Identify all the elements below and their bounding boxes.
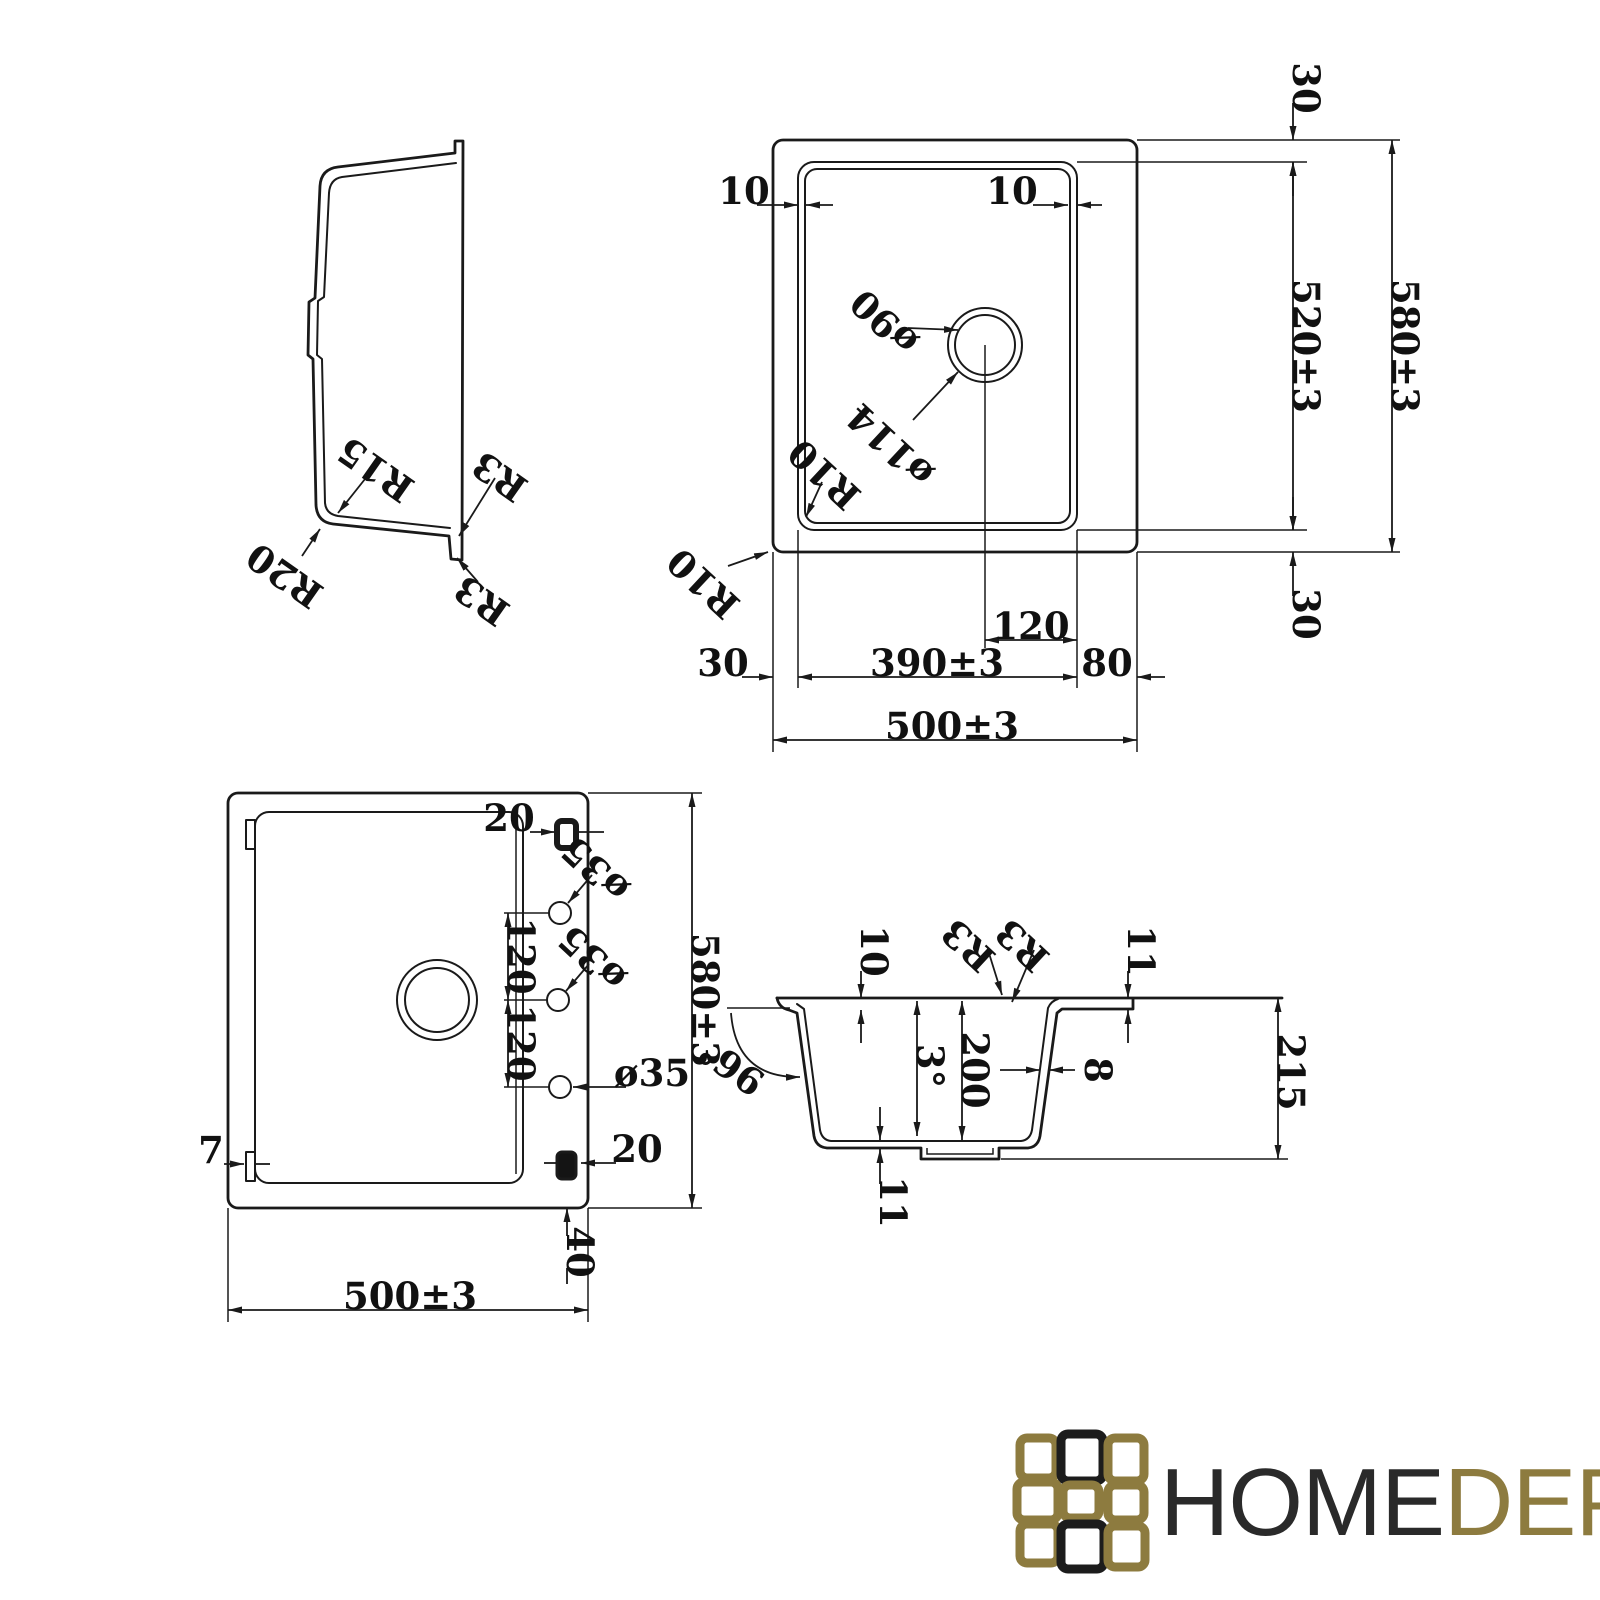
bottom-hole-mid [547, 989, 569, 1011]
bottom-tab-bottom [246, 1152, 255, 1181]
dim-d35-bottom: ø35 [614, 1051, 690, 1095]
dim-40: 40 [558, 1226, 602, 1278]
logo-square [1108, 1485, 1144, 1520]
dim-500: 500±3 [885, 704, 1019, 748]
section-view: 10 R3 R3 11 96° 3° 200 8 215 11 [690, 910, 1313, 1228]
dim-215: 215 [1269, 1033, 1313, 1110]
dim-11-top: 11 [1119, 925, 1163, 977]
dim-200: 200 [953, 1031, 997, 1108]
dim-10-right: 10 [986, 169, 1038, 213]
top-plan-view: 30 520±3 580±3 30 10 10 120 390±3 30 80 … [658, 62, 1427, 752]
section-drain-bump-inner [927, 1148, 993, 1154]
logo-wordmark: HOMEDEPO [1160, 1449, 1600, 1556]
logo-square [1061, 1524, 1104, 1569]
dim-10-left: 10 [718, 169, 770, 213]
dim-390: 390±3 [870, 641, 1004, 685]
dim-11-bottom: 11 [871, 1176, 915, 1228]
dim-8: 8 [1076, 1057, 1120, 1083]
dim-500-bottomview: 500±3 [343, 1274, 477, 1318]
bottom-tab-top [246, 820, 255, 849]
logo-square [1108, 1438, 1144, 1481]
dim-10-section: 10 [852, 925, 896, 977]
brand-logo: HOMEDEPO [1017, 1434, 1600, 1569]
dim-20-top: 20 [483, 796, 535, 840]
leader-drain-outer [913, 372, 958, 420]
dim-r10-outer: R10 [658, 539, 748, 627]
logo-word-depo: DEPO [1444, 1449, 1600, 1556]
dim-drain-90: ø90 [841, 280, 927, 364]
logo-square [1108, 1526, 1145, 1567]
dim-r15: R15 [329, 428, 422, 511]
dim-r20: R20 [238, 534, 331, 617]
bottom-slot-bottom [557, 1152, 576, 1179]
dim-3deg: 3° [908, 1044, 952, 1088]
bottom-hole-top [549, 902, 571, 924]
leader-r10-outer [728, 552, 768, 566]
side-profile-view: R15 R20 R3 R3 [238, 141, 535, 635]
dim-120-b: 120 [499, 1004, 543, 1081]
bottom-view: 20 ø35 ø35 ø35 120 120 580±3 20 7 40 500… [198, 793, 727, 1322]
leader-r20 [302, 529, 320, 556]
dim-r3-lower: R3 [446, 566, 518, 634]
dim-20-bottom: 20 [611, 1127, 663, 1171]
dim-7: 7 [198, 1128, 224, 1172]
logo-square [1061, 1434, 1103, 1481]
dim-30-top: 30 [1284, 62, 1328, 114]
dim-80: 80 [1081, 641, 1133, 685]
dim-120-a: 120 [499, 917, 543, 994]
logo-square [1020, 1438, 1056, 1478]
bottom-hole-bottom [549, 1076, 571, 1098]
logo-square [1020, 1524, 1058, 1563]
dim-r3-upper: R3 [464, 442, 536, 510]
drawing-sheet: R15 R20 R3 R3 30 520±3 580±3 30 [0, 0, 1600, 1600]
dim-30-bottom: 30 [1284, 588, 1328, 640]
bottom-drain-circle-inner [405, 968, 469, 1032]
bottom-body-rect [255, 812, 523, 1183]
dim-30-left: 30 [697, 641, 749, 685]
dim-580: 580±3 [1383, 279, 1427, 413]
bottom-drain-circle-outer [397, 960, 477, 1040]
logo-word-home: HOME [1160, 1449, 1444, 1556]
dim-520: 520±3 [1284, 279, 1328, 413]
dim-r3-b: R3 [986, 910, 1057, 981]
logo-grid-icon [1017, 1434, 1145, 1569]
technical-drawing: R15 R20 R3 R3 30 520±3 580±3 30 [0, 0, 1600, 1600]
dim-d35-mid: ø35 [549, 916, 635, 1000]
logo-square [1063, 1485, 1099, 1518]
logo-square [1017, 1482, 1058, 1520]
